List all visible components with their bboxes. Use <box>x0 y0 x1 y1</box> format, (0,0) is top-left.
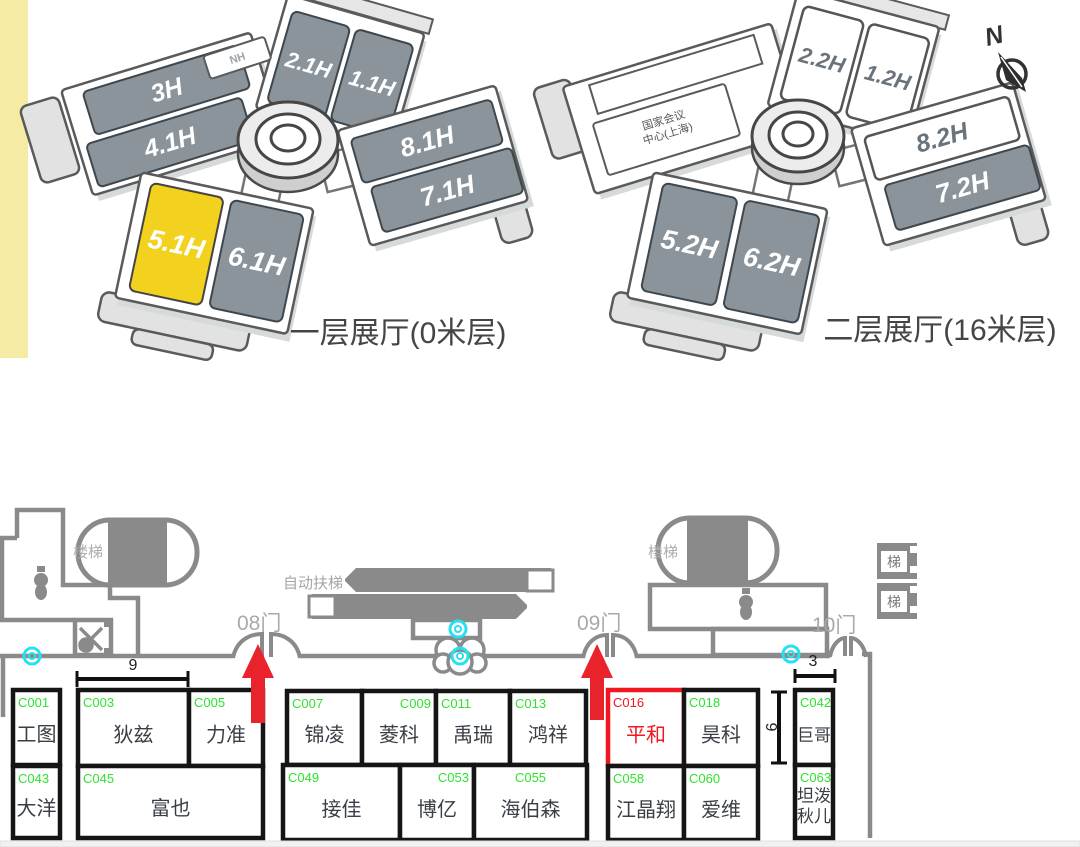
booth-C011: C011禹瑞 <box>436 691 510 765</box>
svg-text:C016: C016 <box>613 695 644 710</box>
svg-text:菱科: 菱科 <box>379 723 419 746</box>
svg-text:C011: C011 <box>441 696 471 711</box>
svg-text:坦泼: 坦泼 <box>797 787 831 806</box>
svg-text:昊科: 昊科 <box>701 724 741 747</box>
booth-C049: C049接佳 <box>283 765 400 840</box>
floor2-diagram: 国家会议 中心(上海) 2.2H 1.2H 8.2H 7.2H 5.2 <box>532 0 1056 368</box>
booth-C009: C009菱科 <box>362 691 436 765</box>
svg-text:鸿祥: 鸿祥 <box>528 723 568 746</box>
booth-C016: C016平和 <box>608 690 684 766</box>
yellow-strip <box>0 0 28 358</box>
svg-text:C055: C055 <box>515 770 546 785</box>
svg-text:C003: C003 <box>83 695 114 710</box>
svg-text:博亿: 博亿 <box>417 798 457 821</box>
escalator: 自动扶梯 <box>283 568 553 619</box>
svg-text:C063: C063 <box>800 770 831 785</box>
svg-text:C013: C013 <box>515 696 546 711</box>
ring-f1 <box>238 102 338 192</box>
escalator-label: 自动扶梯 <box>283 575 343 592</box>
door-08-label: 08门 <box>237 612 281 635</box>
booth-C063: C063坦泼秋儿 <box>795 765 833 838</box>
stairs-right: 楼梯 <box>648 518 777 583</box>
booth-C042: C042巨哥 <box>795 690 833 765</box>
person-icon-left <box>34 566 48 600</box>
booth-C053: C053博亿 <box>400 765 474 840</box>
floorplan: 楼梯 楼梯 自动扶梯 <box>0 510 917 840</box>
dim-9-label: 9 <box>129 657 138 674</box>
svg-text:C058: C058 <box>613 771 644 786</box>
booth-C013: C013鸿祥 <box>510 691 586 765</box>
svg-text:巨哥: 巨哥 <box>797 726 831 745</box>
svg-text:接佳: 接佳 <box>322 798 362 821</box>
svg-text:锦凌: 锦凌 <box>305 723 345 746</box>
stairs-left: 楼梯 <box>73 520 197 585</box>
door-09-label: 09门 <box>577 612 621 635</box>
elevator-box-2: 梯 <box>877 583 917 619</box>
cloud-shape <box>434 638 486 674</box>
svg-text:C018: C018 <box>689 695 720 710</box>
booth-C055: C055海伯森 <box>474 765 587 840</box>
door-10-label: 10门 <box>812 614 856 637</box>
booth-C060: C060爱维 <box>684 766 758 840</box>
dim-9: 9 <box>77 657 188 687</box>
booth-C058: C058江晶翔 <box>608 766 684 840</box>
dim-6-label: 6 <box>764 722 781 731</box>
stairs-right-label: 楼梯 <box>648 544 678 561</box>
svg-text:大洋: 大洋 <box>17 797 57 820</box>
exhibition-map-page: 3H 4.1H 2.1H 1.1H NH 8.1H 7.1H <box>0 0 1080 847</box>
elevator-label-1: 梯 <box>887 554 901 570</box>
booth-C007: C007锦凌 <box>287 691 362 765</box>
booth-C003: C003狄兹 <box>78 690 189 766</box>
turnstile-icon <box>80 628 102 651</box>
svg-text:富也: 富也 <box>151 797 191 820</box>
svg-text:C005: C005 <box>194 695 225 710</box>
floor2-caption: 二层展厅(16米层) <box>823 314 1056 347</box>
elevator-box-1: 梯 <box>877 543 917 579</box>
booth-C001: C001工图 <box>13 690 60 765</box>
person-icon-right <box>739 588 753 620</box>
svg-text:平和: 平和 <box>626 724 666 747</box>
svg-text:江晶翔: 江晶翔 <box>616 798 676 821</box>
svg-text:C009: C009 <box>400 696 431 711</box>
svg-text:C043: C043 <box>18 771 49 786</box>
booth-C045: C045富也 <box>78 766 263 838</box>
floor1-diagram: 3H 4.1H 2.1H 1.1H NH 8.1H 7.1H <box>19 0 534 368</box>
elevator-label-2: 梯 <box>887 594 901 610</box>
svg-text:C060: C060 <box>689 771 720 786</box>
dim-6: 6 <box>764 692 787 763</box>
svg-text:力准: 力准 <box>206 724 246 747</box>
svg-text:C045: C045 <box>83 771 114 786</box>
booth-C018: C018昊科 <box>684 690 758 766</box>
north-compass: N <box>982 20 1026 92</box>
bottom-strip <box>0 841 1080 847</box>
north-label: N <box>982 20 1007 52</box>
floor1-caption: 一层展厅(0米层) <box>290 317 507 350</box>
svg-text:禹瑞: 禹瑞 <box>453 723 493 746</box>
svg-text:工图: 工图 <box>17 724 57 746</box>
svg-text:爱维: 爱维 <box>701 798 741 821</box>
map-canvas: 3H 4.1H 2.1H 1.1H NH 8.1H 7.1H <box>0 0 1080 847</box>
ring-f2 <box>752 100 844 184</box>
svg-text:C007: C007 <box>292 696 323 711</box>
dim-3-label: 3 <box>809 653 818 670</box>
svg-text:C001: C001 <box>18 695 49 710</box>
svg-text:C042: C042 <box>800 695 831 710</box>
svg-text:海伯森: 海伯森 <box>501 798 561 821</box>
svg-text:C049: C049 <box>288 770 319 785</box>
booth-C043: C043大洋 <box>13 766 60 838</box>
stairs-left-label: 楼梯 <box>73 544 103 561</box>
booth-layer: C001工图C043大洋C003狄兹C005力准C045富也C007锦凌C009… <box>13 690 833 840</box>
svg-text:秋儿: 秋儿 <box>797 807 831 826</box>
svg-text:C053: C053 <box>438 770 469 785</box>
svg-text:狄兹: 狄兹 <box>114 724 154 747</box>
